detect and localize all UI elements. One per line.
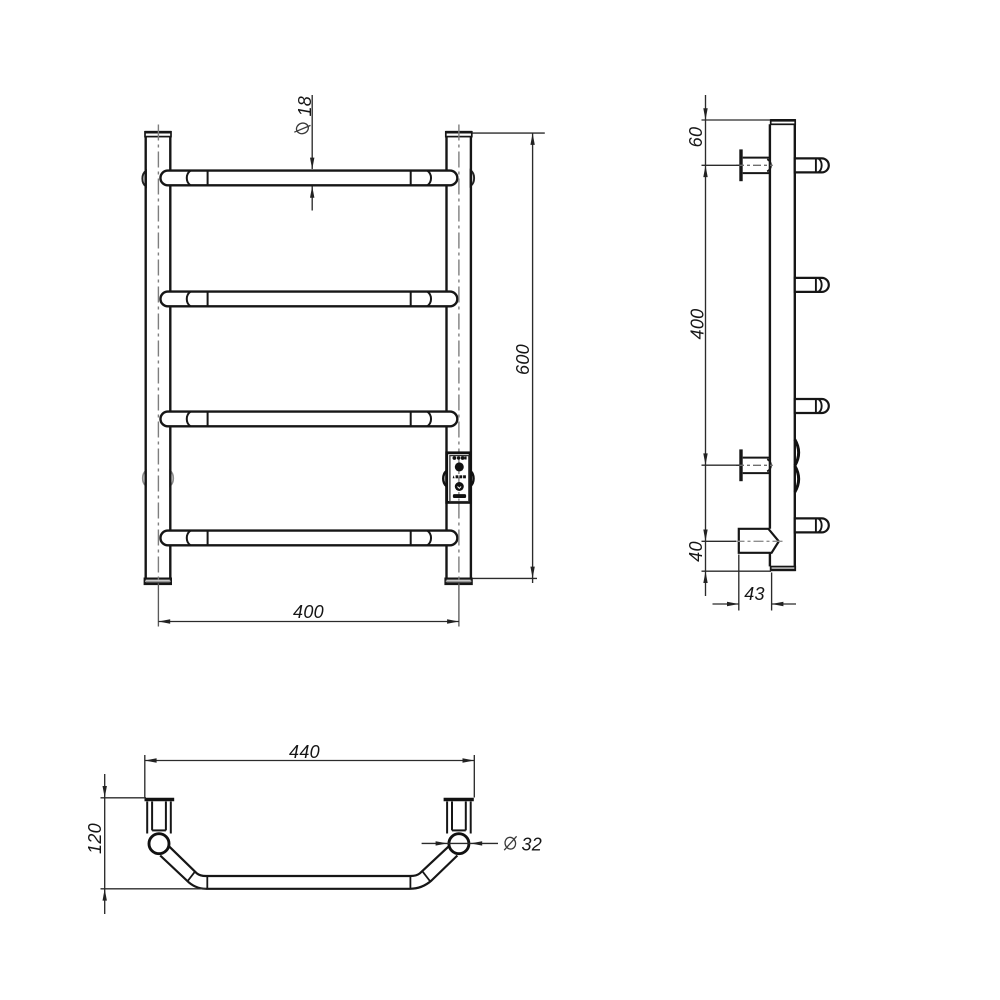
svg-text:60: 60 (686, 127, 706, 148)
svg-text:32: 32 (522, 834, 543, 854)
svg-text:400: 400 (293, 602, 324, 622)
svg-text:440: 440 (289, 742, 320, 762)
svg-text:43: 43 (744, 584, 765, 604)
svg-text:120: 120 (85, 823, 105, 854)
svg-text:400: 400 (688, 309, 708, 340)
svg-text:18: 18 (295, 96, 315, 117)
svg-text:40: 40 (686, 541, 706, 562)
svg-text:600: 600 (513, 344, 533, 375)
